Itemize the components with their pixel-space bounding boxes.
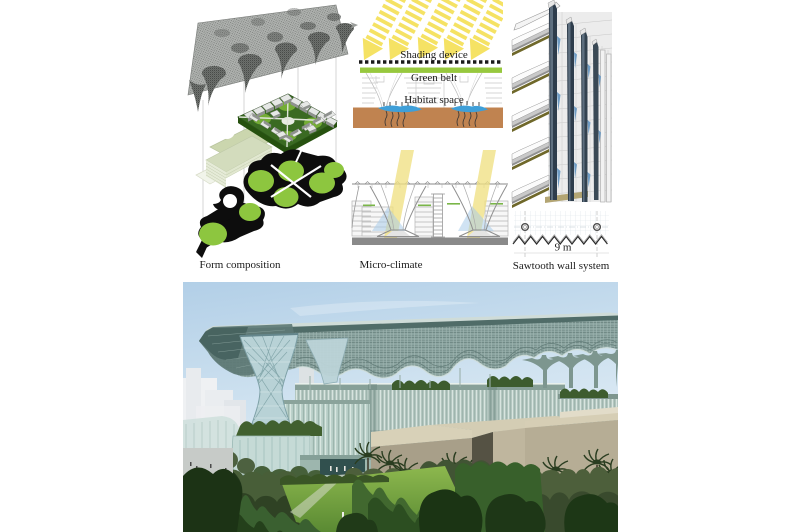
svg-text:Form composition: Form composition [200, 259, 281, 271]
svg-text:Micro-climate: Micro-climate [360, 259, 423, 271]
svg-text:Sawtooth wall system: Sawtooth wall system [513, 260, 610, 272]
svg-text:9 m: 9 m [555, 242, 572, 254]
svg-text:Shading device: Shading device [400, 49, 468, 61]
svg-text:Green belt: Green belt [411, 72, 457, 84]
